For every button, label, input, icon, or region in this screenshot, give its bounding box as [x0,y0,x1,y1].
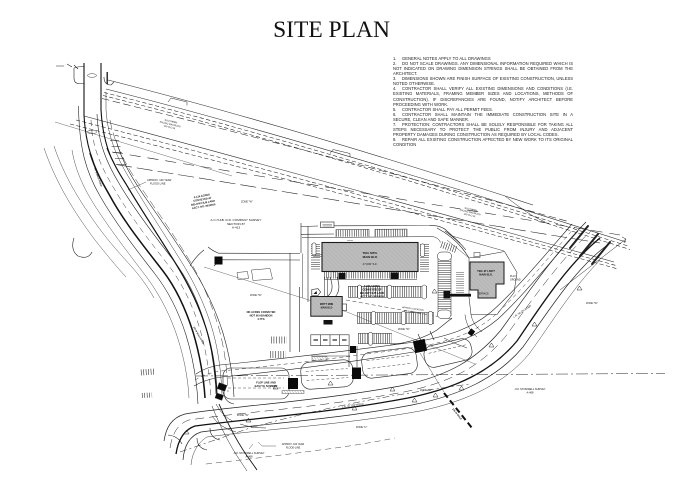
svg-text:ZONE "W": ZONE "W" [250,294,262,297]
svg-text:A-468: A-468 [527,391,534,395]
svg-text:27,000' S.F.: 27,000' S.F. [363,262,378,266]
svg-text:5 CM ACRES: 5 CM ACRES [364,284,380,288]
svg-text:ACCT. NO. 8034659: ACCT. NO. 8034659 [360,295,384,299]
svg-text:L.R. 36 ON RAMP: L.R. 36 ON RAMP [512,304,532,319]
svg-text:GROUND: GROUND [510,279,521,282]
svg-text:ZONE "W": ZONE "W" [420,389,432,392]
svg-text:I.R. W BULK ROAD: I.R. W BULK ROAD [93,167,103,187]
svg-text:A-413: A-413 [232,226,241,230]
svg-text:ZONE "W": ZONE "W" [398,328,410,331]
svg-text:FLOOD-LINE: FLOOD-LINE [286,447,301,450]
svg-text:NOT IN ABANDON: NOT IN ABANDON [250,314,273,318]
svg-text:FLOP LINE AND: FLOP LINE AND [256,381,276,385]
svg-text:TEN. M' LNN'T: TEN. M' LNN'T [477,269,495,273]
svg-text:MAIN BLD.: MAIN BLD. [479,273,493,277]
svg-text:APPROX. 100 YEAR: APPROX. 100 YEAR [147,178,171,182]
svg-text:MAIN BLD: MAIN BLD [363,255,378,259]
svg-text:ZONE "U": ZONE "U" [356,426,367,429]
svg-text:ZONE "W": ZONE "W" [241,201,253,204]
svg-text:J.M. STONWELL SURVEY: J.M. STONWELL SURVEY [233,451,264,455]
svg-text:CONVEYED OF: CONVEYED OF [363,288,382,292]
svg-text:NO ACRES CONVEYED: NO ACRES CONVEYED [247,310,276,314]
svg-text:ZONE "W": ZONE "W" [237,414,249,417]
svg-text:J.M. STONWELL SURVEY: J.M. STONWELL SURVEY [514,387,545,391]
svg-text:4.77%: 4.77% [257,317,265,321]
svg-text:TERRACE: TERRACE [477,293,489,296]
svg-text:A-468: A-468 [246,455,253,459]
svg-text:ZONE "W": ZONE "W" [586,302,598,305]
svg-text:BELOW FILM LAND: BELOW FILM LAND [360,291,384,295]
svg-text:FLOOD LINE: FLOOD LINE [150,182,166,186]
svg-text:L.R. W TOP ROAD: L.R. W TOP ROAD [342,402,365,409]
svg-text:MAIN BLD: MAIN BLD [321,306,333,309]
